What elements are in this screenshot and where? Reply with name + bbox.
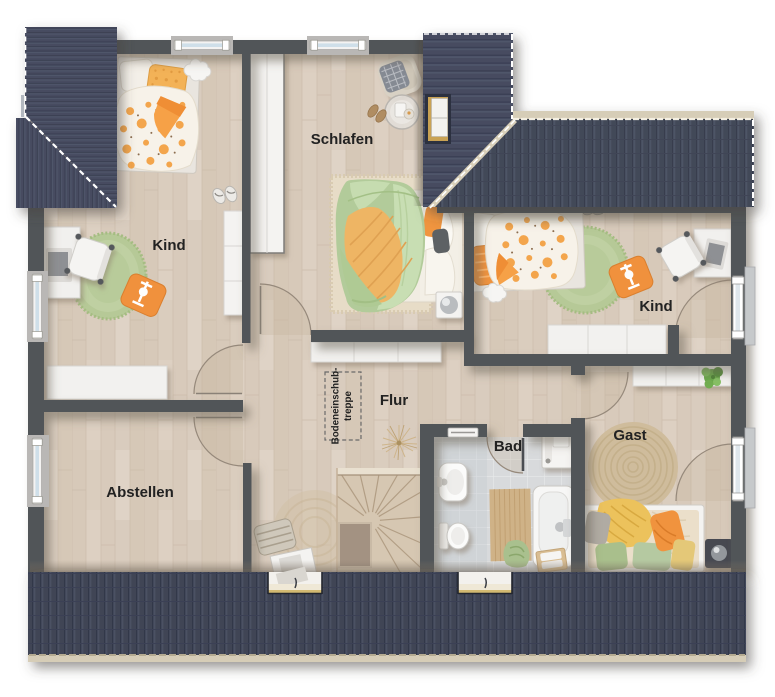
svg-text:Flur: Flur xyxy=(380,392,408,409)
svg-text:Kind: Kind xyxy=(152,237,185,254)
svg-text:treppe: treppe xyxy=(343,390,354,420)
svg-text:Bodeneinschub-: Bodeneinschub- xyxy=(331,368,342,445)
svg-text:Bad: Bad xyxy=(494,438,522,455)
svg-text:Schlafen: Schlafen xyxy=(311,131,374,148)
svg-text:Abstellen: Abstellen xyxy=(106,484,174,501)
svg-text:Gast: Gast xyxy=(613,427,646,444)
svg-text:Kind: Kind xyxy=(639,298,672,315)
